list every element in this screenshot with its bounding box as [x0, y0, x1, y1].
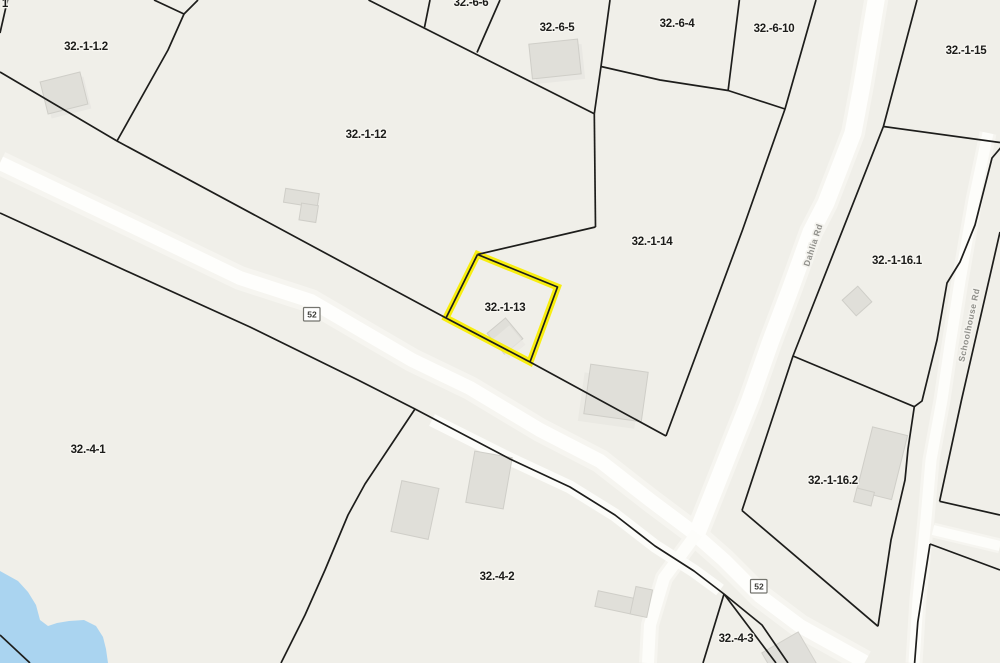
svg-text:32.-1-13: 32.-1-13	[485, 302, 526, 314]
svg-text:32.-1-1.2: 32.-1-1.2	[64, 41, 108, 53]
svg-text:32.-6-4: 32.-6-4	[660, 18, 696, 30]
svg-text:32.-1-12: 32.-1-12	[346, 129, 387, 141]
svg-text:32.-4-1: 32.-4-1	[71, 444, 107, 456]
svg-text:32.-6-6: 32.-6-6	[454, 0, 489, 9]
svg-text:32.-4-3: 32.-4-3	[719, 633, 754, 645]
svg-text:32.-4-2: 32.-4-2	[480, 571, 515, 583]
svg-text:52: 52	[307, 310, 317, 320]
svg-text:32.-1-16.2: 32.-1-16.2	[808, 475, 858, 487]
svg-text:32.-1-16.1: 32.-1-16.1	[872, 255, 923, 267]
svg-text:52: 52	[754, 582, 764, 592]
svg-text:32.-6-5: 32.-6-5	[540, 22, 576, 34]
svg-text:1: 1	[2, 0, 9, 10]
svg-text:32.-6-10: 32.-6-10	[754, 23, 795, 35]
svg-text:32.-1-15: 32.-1-15	[946, 45, 988, 57]
svg-text:32.-1-14: 32.-1-14	[632, 236, 674, 248]
